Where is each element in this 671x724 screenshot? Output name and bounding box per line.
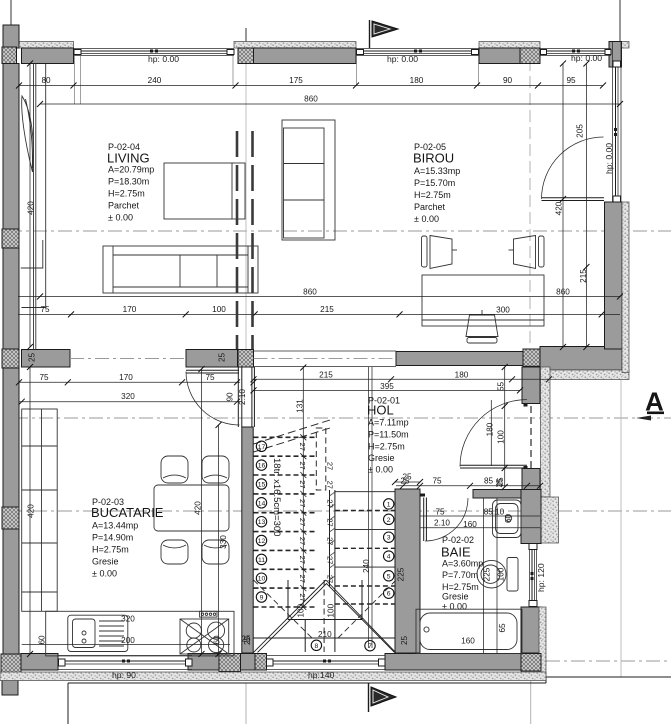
svg-text:131: 131 (296, 399, 305, 413)
svg-text:hp: 90: hp: 90 (112, 670, 136, 680)
svg-text:8: 8 (315, 643, 319, 650)
svg-text:P=14.90m: P=14.90m (92, 533, 133, 543)
svg-text:420: 420 (555, 201, 564, 215)
svg-text:75: 75 (40, 305, 50, 314)
svg-text:75: 75 (435, 508, 445, 517)
svg-text:55: 55 (497, 382, 506, 392)
svg-text:25: 25 (495, 478, 504, 488)
svg-text:27: 27 (326, 556, 335, 564)
svg-text:300: 300 (496, 306, 510, 315)
svg-text:205: 205 (576, 124, 585, 138)
svg-text:H=2.75m: H=2.75m (442, 582, 479, 592)
svg-text:± 0.00: ± 0.00 (442, 602, 467, 612)
svg-text:860: 860 (556, 288, 570, 297)
svg-text:H=2.75m: H=2.75m (414, 190, 451, 200)
svg-text:± 0.00: ± 0.00 (92, 569, 117, 579)
svg-text:100: 100 (497, 567, 506, 581)
svg-text:175: 175 (289, 76, 303, 85)
svg-text:25: 25 (28, 353, 37, 363)
svg-text:60: 60 (38, 635, 47, 645)
svg-text:60: 60 (213, 635, 222, 645)
svg-text:5: 5 (387, 573, 391, 580)
svg-text:27: 27 (298, 575, 307, 583)
svg-text:hp: 0.00: hp: 0.00 (387, 54, 418, 64)
svg-text:P-02-02: P-02-02 (442, 535, 474, 545)
svg-text:BIROU: BIROU (413, 151, 454, 166)
svg-text:27: 27 (298, 556, 307, 564)
svg-text:170: 170 (119, 373, 133, 382)
svg-text:90: 90 (226, 392, 235, 402)
svg-text:27: 27 (298, 593, 307, 601)
svg-text:Gresie: Gresie (442, 592, 469, 602)
svg-text:395: 395 (380, 382, 394, 391)
svg-text:80: 80 (41, 76, 51, 85)
svg-text:25: 25 (243, 636, 252, 646)
svg-text:100: 100 (297, 603, 306, 617)
svg-text:330: 330 (219, 535, 228, 549)
svg-text:hp: 0.00: hp: 0.00 (604, 143, 614, 174)
svg-text:12: 12 (258, 538, 266, 545)
svg-text:225: 225 (483, 567, 492, 581)
svg-text:H=2.75m: H=2.75m (92, 545, 129, 555)
svg-text:160: 160 (463, 520, 477, 529)
svg-text:420: 420 (27, 504, 36, 518)
svg-text:180: 180 (486, 422, 495, 436)
svg-text:hp: 0.00: hp: 0.00 (148, 54, 179, 64)
svg-text:180: 180 (410, 76, 424, 85)
svg-text:27: 27 (326, 499, 335, 507)
svg-text:Parchet: Parchet (108, 201, 140, 211)
svg-text:9: 9 (260, 595, 264, 602)
svg-text:hp: 120: hp: 120 (536, 563, 546, 592)
svg-text:210: 210 (318, 630, 332, 639)
svg-text:27: 27 (326, 537, 335, 545)
svg-text:1: 1 (387, 501, 391, 508)
svg-text:85.10: 85.10 (484, 508, 505, 517)
svg-text:25: 25 (400, 636, 409, 646)
svg-text:27: 27 (326, 518, 335, 526)
svg-text:BUCATARIE: BUCATARIE (91, 505, 164, 520)
svg-text:Gresie: Gresie (92, 557, 119, 567)
svg-text:240: 240 (362, 559, 371, 573)
svg-text:860: 860 (304, 95, 318, 104)
svg-text:hp: 0.00: hp: 0.00 (571, 53, 602, 63)
svg-text:6: 6 (387, 591, 391, 598)
svg-text:27: 27 (298, 499, 307, 507)
svg-text:90: 90 (503, 76, 513, 85)
svg-text:H=2.75m: H=2.75m (108, 189, 145, 199)
svg-text:75: 75 (39, 373, 49, 382)
svg-text:170: 170 (123, 305, 137, 314)
svg-text:P=7.70m: P=7.70m (442, 570, 478, 580)
svg-text:65: 65 (498, 623, 507, 633)
svg-text:60: 60 (504, 514, 513, 524)
svg-text:± 0.00: ± 0.00 (414, 214, 439, 224)
svg-text:hp:140: hp:140 (308, 670, 335, 680)
svg-text:320: 320 (121, 392, 135, 401)
svg-text:320: 320 (121, 615, 135, 624)
svg-text:A=15.33mp: A=15.33mp (414, 166, 460, 176)
svg-text:100: 100 (327, 603, 336, 617)
svg-text:LIVING: LIVING (107, 151, 150, 166)
svg-text:27: 27 (326, 481, 335, 489)
svg-text:85: 85 (484, 476, 494, 485)
svg-text:3: 3 (387, 535, 391, 542)
svg-text:A=3.60mp: A=3.60mp (442, 559, 483, 569)
svg-text:H=2.75m: H=2.75m (368, 442, 405, 452)
svg-text:A=20.79mp: A=20.79mp (108, 165, 154, 175)
svg-text:200: 200 (121, 636, 135, 645)
svg-text:240: 240 (148, 76, 162, 85)
svg-text:420: 420 (194, 501, 203, 515)
svg-text:420: 420 (27, 201, 36, 215)
svg-text:HOL: HOL (367, 403, 394, 418)
svg-text:95: 95 (566, 76, 576, 85)
svg-text:P=15.70m: P=15.70m (414, 178, 455, 188)
svg-text:Gresie: Gresie (368, 453, 395, 463)
svg-text:BAIE: BAIE (441, 545, 471, 560)
svg-text:17: 17 (258, 444, 266, 451)
svg-text:860: 860 (303, 288, 317, 297)
svg-text:180: 180 (455, 371, 469, 380)
svg-text:± 0.00: ± 0.00 (108, 213, 133, 223)
svg-text:4: 4 (387, 554, 391, 561)
svg-text:25: 25 (218, 353, 227, 363)
svg-text:14: 14 (258, 500, 266, 507)
svg-text:P=18.30m: P=18.30m (108, 177, 149, 187)
svg-text:A=7.11mp: A=7.11mp (368, 418, 409, 428)
svg-text:2.10: 2.10 (434, 519, 450, 528)
svg-text:A=13.44mp: A=13.44mp (92, 521, 138, 531)
svg-text:27: 27 (298, 443, 307, 451)
svg-text:15: 15 (258, 482, 266, 489)
svg-text:27: 27 (298, 480, 307, 488)
svg-text:2: 2 (387, 517, 391, 524)
svg-text:27: 27 (298, 537, 307, 545)
svg-text:P=11.50m: P=11.50m (368, 430, 409, 440)
svg-text:10: 10 (258, 576, 266, 583)
svg-text:2.10: 2.10 (238, 389, 247, 405)
svg-text:13: 13 (258, 519, 266, 526)
svg-text:18tr. x16.5cm=300: 18tr. x16.5cm=300 (271, 458, 282, 536)
svg-text:75: 75 (205, 373, 215, 382)
svg-text:25: 25 (402, 473, 412, 482)
svg-text:27: 27 (298, 461, 307, 469)
svg-text:100: 100 (212, 305, 226, 314)
svg-text:16: 16 (258, 463, 266, 470)
svg-text:100: 100 (497, 430, 506, 444)
svg-text:11: 11 (258, 557, 265, 564)
svg-text:160: 160 (461, 637, 475, 646)
svg-text:27: 27 (326, 462, 335, 470)
svg-text:225: 225 (397, 567, 406, 581)
svg-text:Parchet: Parchet (414, 202, 446, 212)
svg-text:± 0.00: ± 0.00 (368, 465, 393, 475)
svg-text:215: 215 (579, 269, 588, 283)
svg-text:215: 215 (320, 305, 334, 314)
svg-text:27: 27 (326, 575, 335, 583)
svg-text:215: 215 (319, 371, 333, 380)
svg-text:27: 27 (298, 518, 307, 526)
svg-text:75: 75 (432, 476, 442, 485)
